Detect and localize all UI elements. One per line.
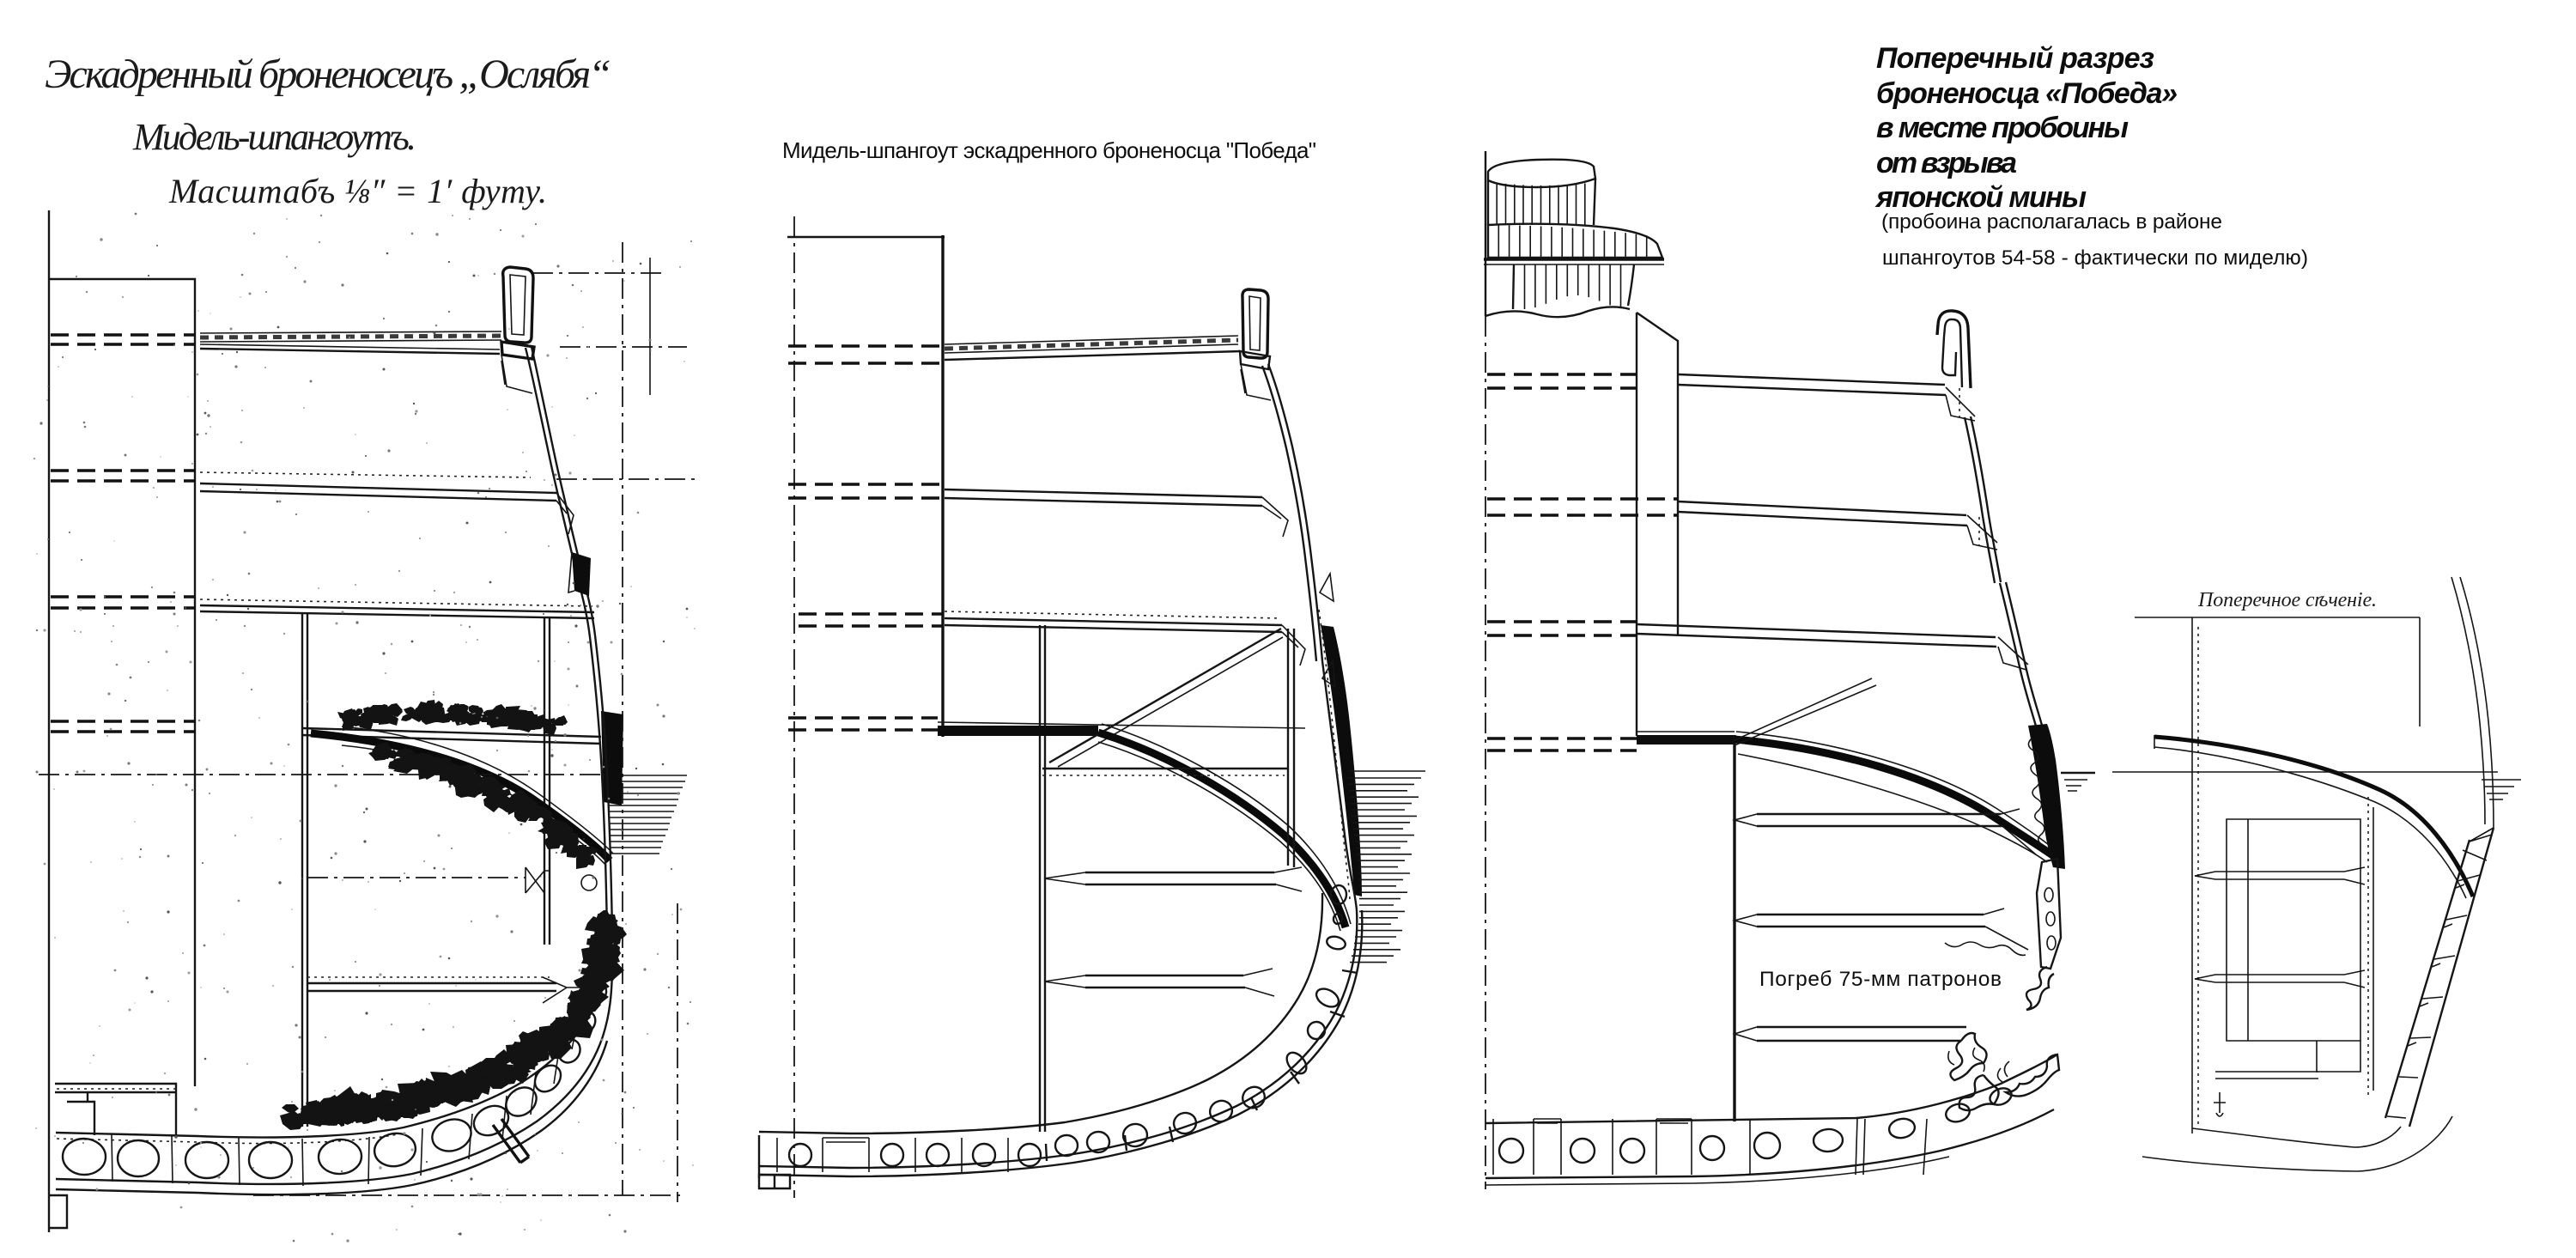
svg-text:от взрыва: от взрыва	[1876, 147, 2017, 179]
svg-text:Погреб 75-мм патронов: Погреб 75-мм патронов	[1759, 968, 2002, 991]
svg-text:Поперечный разрез: Поперечный разрез	[1876, 42, 2154, 75]
svg-text:Мидель-шпангоут эскадренного б: Мидель-шпангоут эскадренного броненосца …	[782, 137, 1316, 163]
svg-text:Мидель-шпангоутъ.: Мидель-шпангоутъ.	[132, 116, 416, 158]
svg-text:броненосца «Победа»: броненосца «Победа»	[1876, 77, 2178, 110]
svg-text:шпангоутов 54-58 - фактически: шпангоутов 54-58 - фактически по миделю)	[1882, 246, 2308, 270]
svg-text:Поперечное сѣченіе.: Поперечное сѣченіе.	[2197, 589, 2377, 611]
svg-text:в месте пробоины: в месте пробоины	[1876, 112, 2129, 144]
svg-text:(пробоина располагалась в райо: (пробоина располагалась в районе	[1881, 210, 2222, 234]
svg-text:японской мины: японской мины	[1874, 181, 2087, 214]
svg-text:Масштабъ ⅛″ = 1′ футу.: Масштабъ ⅛″ = 1′ футу.	[168, 172, 547, 210]
svg-text:Эскадренный броненосецъ „Осляб: Эскадренный броненосецъ „Ослябя“	[45, 52, 611, 97]
